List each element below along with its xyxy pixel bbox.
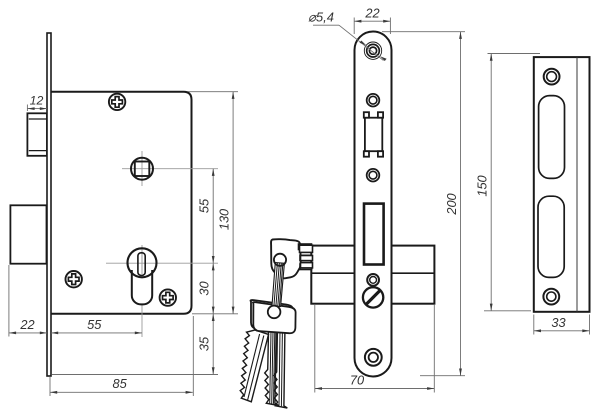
svg-text:85: 85 (112, 376, 127, 391)
svg-text:55: 55 (87, 317, 102, 332)
svg-text:22: 22 (19, 317, 34, 332)
svg-text:130: 130 (217, 208, 232, 230)
svg-text:35: 35 (197, 336, 212, 351)
svg-text:⌀5,4: ⌀5,4 (308, 10, 334, 25)
svg-text:55: 55 (197, 198, 212, 213)
svg-text:22: 22 (364, 6, 379, 21)
svg-text:30: 30 (197, 281, 212, 296)
svg-text:12: 12 (30, 93, 44, 107)
svg-text:200: 200 (444, 192, 459, 215)
svg-text:150: 150 (475, 174, 490, 196)
svg-text:70: 70 (350, 373, 365, 388)
svg-text:33: 33 (551, 315, 565, 330)
